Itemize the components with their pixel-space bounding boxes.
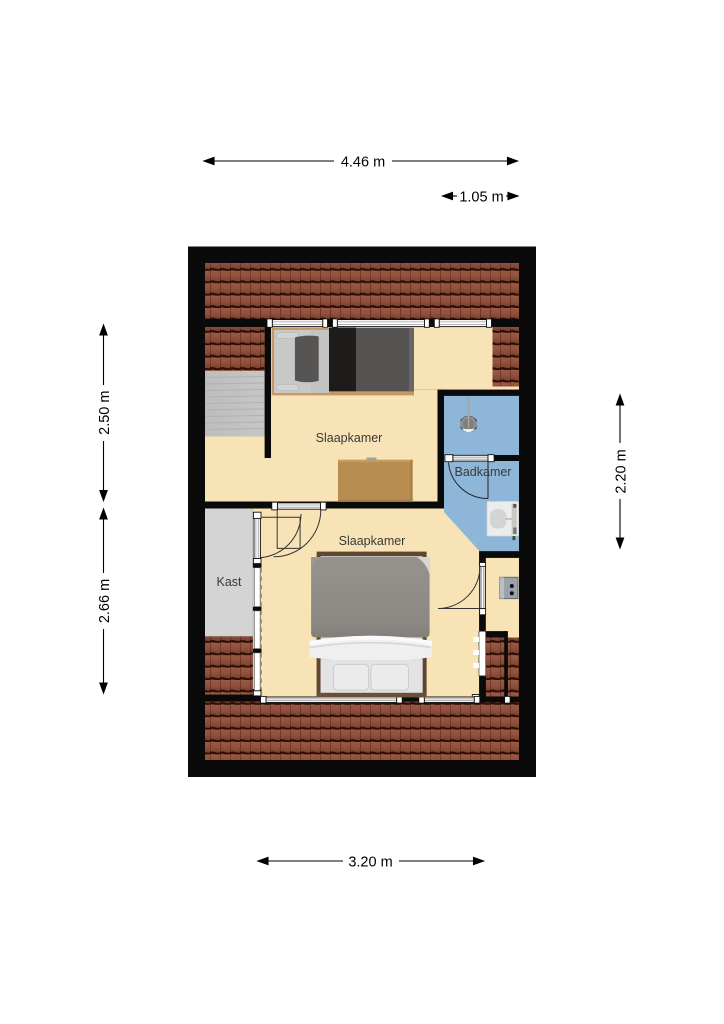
- svg-text:Slaapkamer: Slaapkamer: [316, 431, 383, 445]
- svg-text:1.05 m: 1.05 m: [459, 189, 503, 205]
- svg-text:2.50 m: 2.50 m: [97, 391, 113, 435]
- svg-text:4.46 m: 4.46 m: [341, 154, 385, 170]
- svg-text:Kast: Kast: [216, 575, 242, 589]
- svg-text:Badkamer: Badkamer: [455, 465, 512, 479]
- svg-text:Slaapkamer: Slaapkamer: [339, 534, 406, 548]
- svg-text:3.20 m: 3.20 m: [348, 854, 392, 870]
- svg-text:2.66 m: 2.66 m: [97, 579, 113, 623]
- svg-text:2.20 m: 2.20 m: [613, 449, 629, 493]
